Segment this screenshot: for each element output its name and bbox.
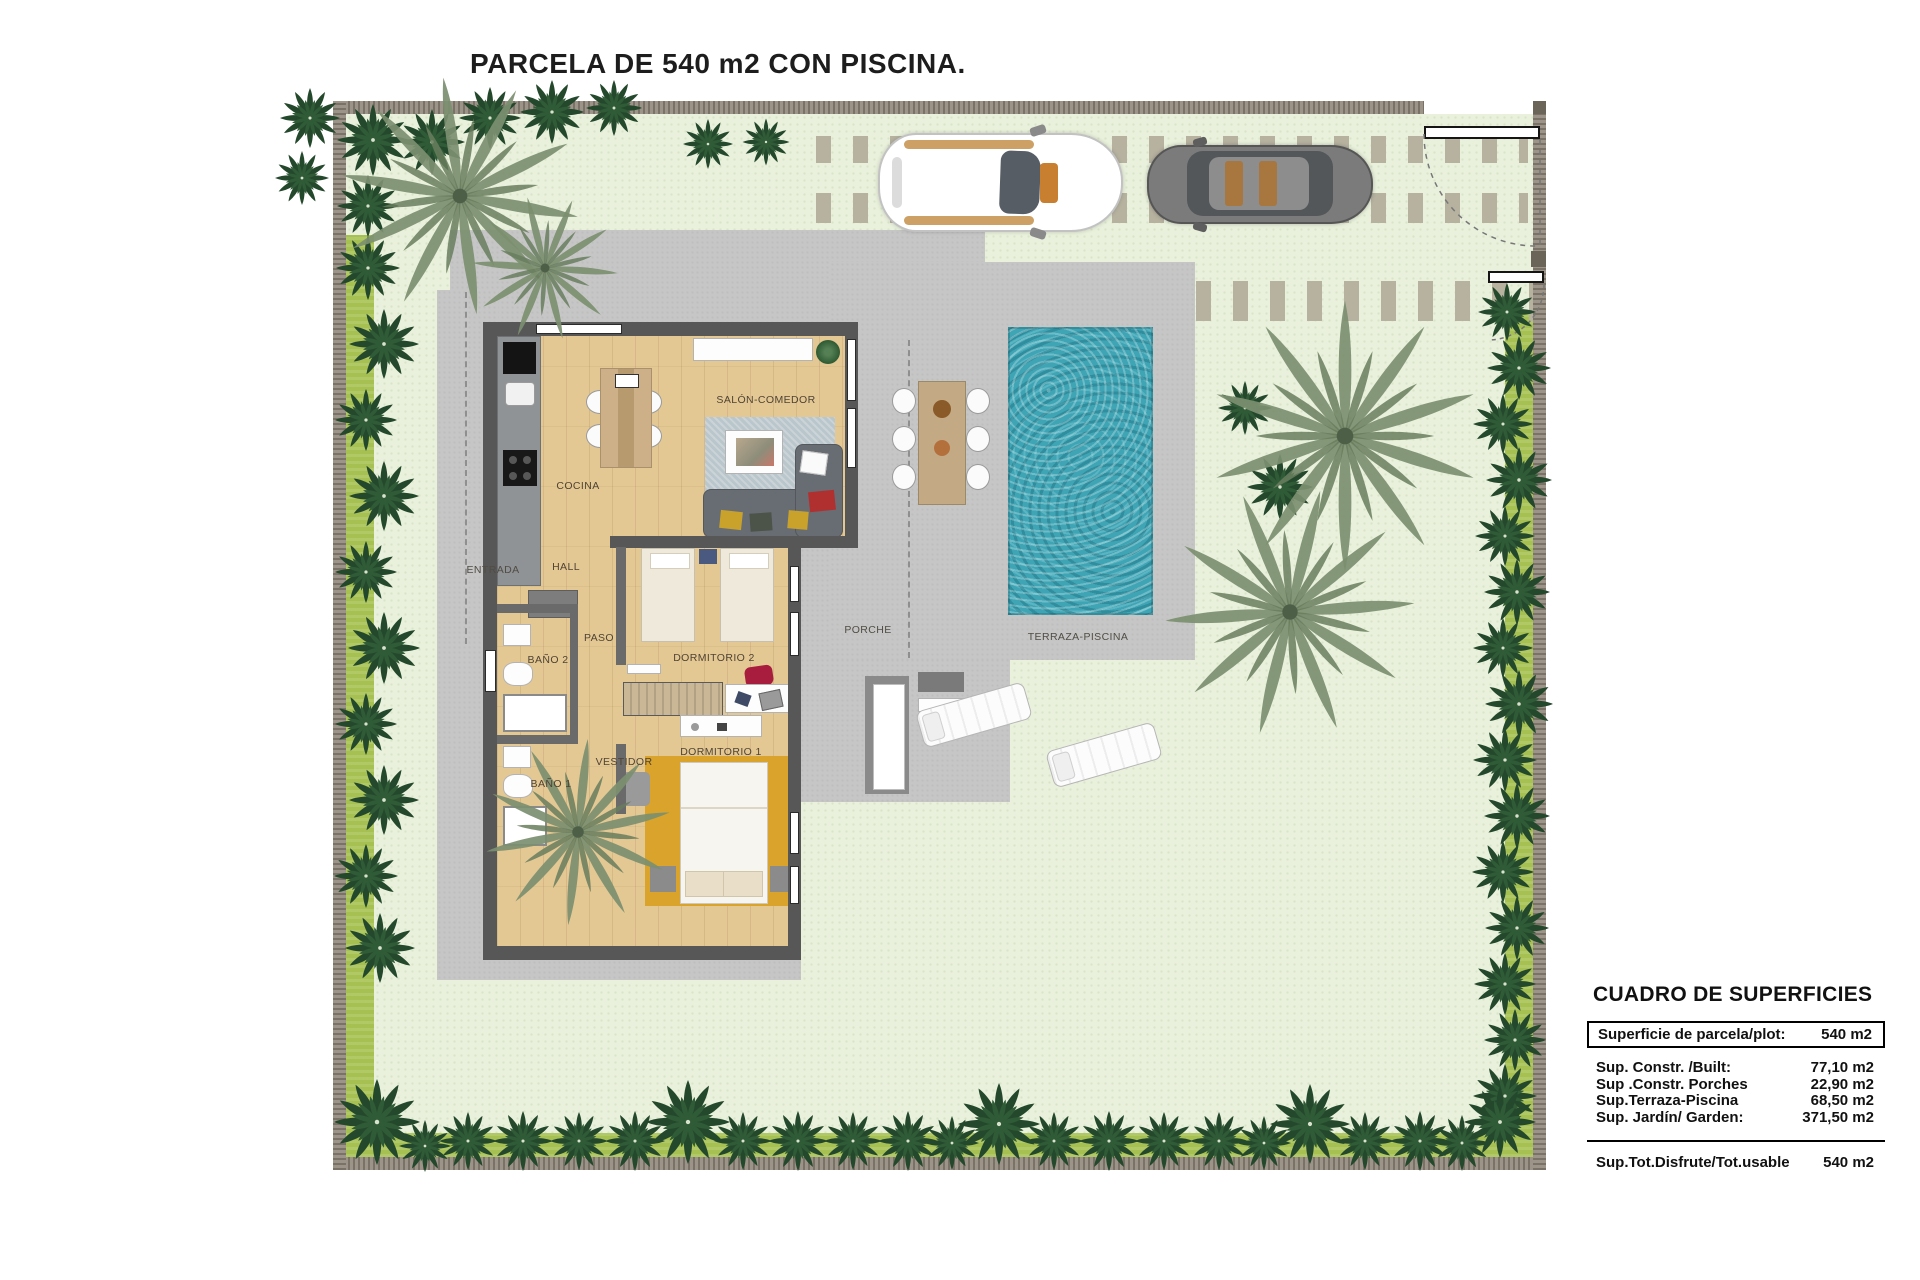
area-label-porche: PORCHE <box>844 624 891 636</box>
glass-pane <box>873 684 905 790</box>
laptop-icon <box>758 689 783 711</box>
window-bedroom2 <box>790 612 799 656</box>
surface-row-value: 540 m2 <box>1823 1154 1874 1171</box>
wall-bathroom-east <box>570 604 578 744</box>
room-label-vestidor: VESTIDOR <box>596 756 653 768</box>
boundary-wall-top <box>333 101 1546 114</box>
surface-rows: Sup. Constr. /Built: 77,10 m2 Sup .Const… <box>1587 1060 1885 1126</box>
pillow-dark <box>749 512 772 531</box>
bowl-icon <box>933 400 951 418</box>
dining-table <box>600 368 652 468</box>
kitchen-hood <box>503 342 536 374</box>
surface-row-value: 22,90 m2 <box>1811 1077 1874 1094</box>
room-label-entrada: ENTRADA <box>467 564 520 576</box>
pillow <box>800 450 829 475</box>
window-bedroom1 <box>790 812 799 854</box>
room-label-hall: HALL <box>552 561 580 573</box>
south-slab <box>437 960 801 980</box>
armchair <box>622 772 650 806</box>
vanity-item <box>691 723 699 731</box>
palm-tree <box>275 151 329 205</box>
bed-pillow <box>685 871 725 897</box>
room-label-dormitorio1: DORMITORIO 1 <box>680 746 762 758</box>
outdoor-chair <box>892 464 916 490</box>
tv-picture <box>736 438 774 466</box>
single-bed <box>641 548 695 642</box>
shelf <box>627 664 661 674</box>
plan-title: PARCELA DE 540 m2 CON PISCINA. <box>470 48 966 80</box>
porch-bench <box>918 672 964 692</box>
rear-window <box>892 157 902 208</box>
dashed-line <box>465 292 467 644</box>
surface-row: Sup.Terraza-Piscina 68,50 m2 <box>1587 1093 1885 1110</box>
surface-row: Sup. Jardín/ Garden: 371,50 m2 <box>1587 1110 1885 1127</box>
hedge-right <box>1505 312 1533 1157</box>
surface-row-label: Superficie de parcela/plot: <box>1598 1026 1786 1043</box>
surface-row: Sup. Constr. /Built: 77,10 m2 <box>1587 1060 1885 1077</box>
surface-row-plot: Superficie de parcela/plot: 540 m2 <box>1587 1021 1885 1048</box>
wardrobe <box>623 682 723 716</box>
window-bedroom1 <box>790 866 799 904</box>
table-tray <box>615 374 639 388</box>
room-label-paso: PASO <box>584 632 614 644</box>
wall-living-bedroom <box>610 536 858 548</box>
swimming-pool <box>1008 327 1153 615</box>
pillow-red <box>808 490 836 513</box>
surface-row-label: Sup .Constr. Porches <box>1596 1077 1748 1094</box>
surface-row-value: 540 m2 <box>1821 1026 1872 1043</box>
surface-row-value: 77,10 m2 <box>1811 1060 1874 1077</box>
bath1-shower <box>503 806 547 846</box>
bath1-sink <box>503 746 531 768</box>
bowl-icon <box>934 440 950 456</box>
area-label-terraza-piscina: TERRAZA-PISCINA <box>1028 631 1129 643</box>
vanity-item <box>717 723 727 731</box>
car-white <box>878 133 1123 232</box>
outdoor-chair <box>966 464 990 490</box>
bed-pillow <box>723 871 763 897</box>
surface-table-heading: CUADRO DE SUPERFICIES <box>1593 983 1885 1007</box>
dashboard <box>1040 163 1058 203</box>
bed-pillow <box>729 553 769 569</box>
surface-row-total: Sup.Tot.Disfrute/Tot.usable 540 m2 <box>1587 1154 1885 1171</box>
bath2-sink <box>503 624 531 646</box>
kitchen-sink <box>505 382 535 406</box>
room-label-bano1: BAÑO 1 <box>531 778 572 790</box>
window-living-east <box>847 339 856 401</box>
surface-row-label: Sup. Constr. /Built: <box>1596 1060 1731 1077</box>
surface-row: Sup .Constr. Porches 22,90 m2 <box>1587 1077 1885 1094</box>
gate-path-paving <box>1196 281 1533 321</box>
window-north <box>536 324 622 334</box>
plant-icon <box>816 340 840 364</box>
burner-icon <box>509 472 517 480</box>
palm-tree <box>280 88 340 148</box>
outdoor-chair <box>966 388 990 414</box>
gate-post <box>1531 251 1546 267</box>
hedge-bottom <box>346 1133 1533 1157</box>
desk <box>725 684 797 713</box>
car-seat <box>1225 161 1243 206</box>
burner-icon <box>523 472 531 480</box>
bed-pillow <box>650 553 690 569</box>
room-label-dormitorio2: DORMITORIO 2 <box>673 652 755 664</box>
house-wall-south <box>483 946 801 960</box>
nightstand <box>650 866 676 892</box>
sideboard <box>693 338 813 361</box>
wall-bath2-north <box>497 604 578 613</box>
bed-fold <box>681 807 767 809</box>
car-gray <box>1147 145 1373 224</box>
outdoor-chair <box>966 426 990 452</box>
windshield <box>999 150 1041 214</box>
pillow-yellow <box>787 510 808 530</box>
entrance-door <box>485 650 496 692</box>
pillow-yellow <box>719 510 743 530</box>
boundary-wall-left <box>333 101 346 1170</box>
car-seat <box>1259 161 1277 206</box>
gate-opening <box>1424 101 1533 114</box>
bath1-toilet <box>503 774 533 798</box>
site-plan: PARCELA DE 540 m2 CON PISCINA. <box>0 0 1920 1280</box>
hedge-left <box>346 235 374 1157</box>
window-bedroom2 <box>790 566 799 602</box>
vanity <box>680 715 762 737</box>
house-wall-west <box>483 322 497 960</box>
room-label-cocina: COCINA <box>556 480 599 492</box>
single-bed <box>720 548 774 642</box>
pedestrian-gate <box>1488 271 1544 283</box>
dashed-line <box>908 340 910 658</box>
surface-divider <box>1587 1140 1885 1142</box>
desk-item <box>734 691 751 707</box>
porch-glass-door <box>865 676 909 794</box>
gate-post <box>1533 101 1546 114</box>
surface-row-value: 68,50 m2 <box>1811 1093 1874 1110</box>
surface-row-label: Sup.Terraza-Piscina <box>1596 1093 1738 1110</box>
room-label-bano2: BAÑO 2 <box>528 654 569 666</box>
window-living-east <box>847 408 856 468</box>
kitchen-stove <box>503 450 537 486</box>
surface-row-value: 371,50 m2 <box>1802 1110 1874 1127</box>
boundary-wall-bottom <box>333 1157 1546 1170</box>
room-label-salon: SALÓN-COMEDOR <box>716 394 815 406</box>
burner-icon <box>509 456 517 464</box>
burner-icon <box>523 456 531 464</box>
driveway-gate <box>1424 126 1540 139</box>
nightstand-blue <box>699 549 717 564</box>
tv-unit <box>725 430 783 474</box>
car-trim <box>904 216 1034 225</box>
double-bed <box>680 762 768 904</box>
outdoor-chair <box>892 388 916 414</box>
car-trim <box>904 140 1034 149</box>
wall-between-baths <box>497 735 578 744</box>
surface-table: CUADRO DE SUPERFICIES Superficie de parc… <box>1587 983 1885 1171</box>
surface-row-label: Sup. Jardín/ Garden: <box>1596 1110 1744 1127</box>
surface-row-label: Sup.Tot.Disfrute/Tot.usable <box>1596 1154 1790 1171</box>
wall-vestidor <box>616 744 626 814</box>
outdoor-table <box>918 381 966 505</box>
bath2-shower <box>503 694 567 732</box>
wall-paso <box>616 547 626 665</box>
outdoor-chair <box>892 426 916 452</box>
